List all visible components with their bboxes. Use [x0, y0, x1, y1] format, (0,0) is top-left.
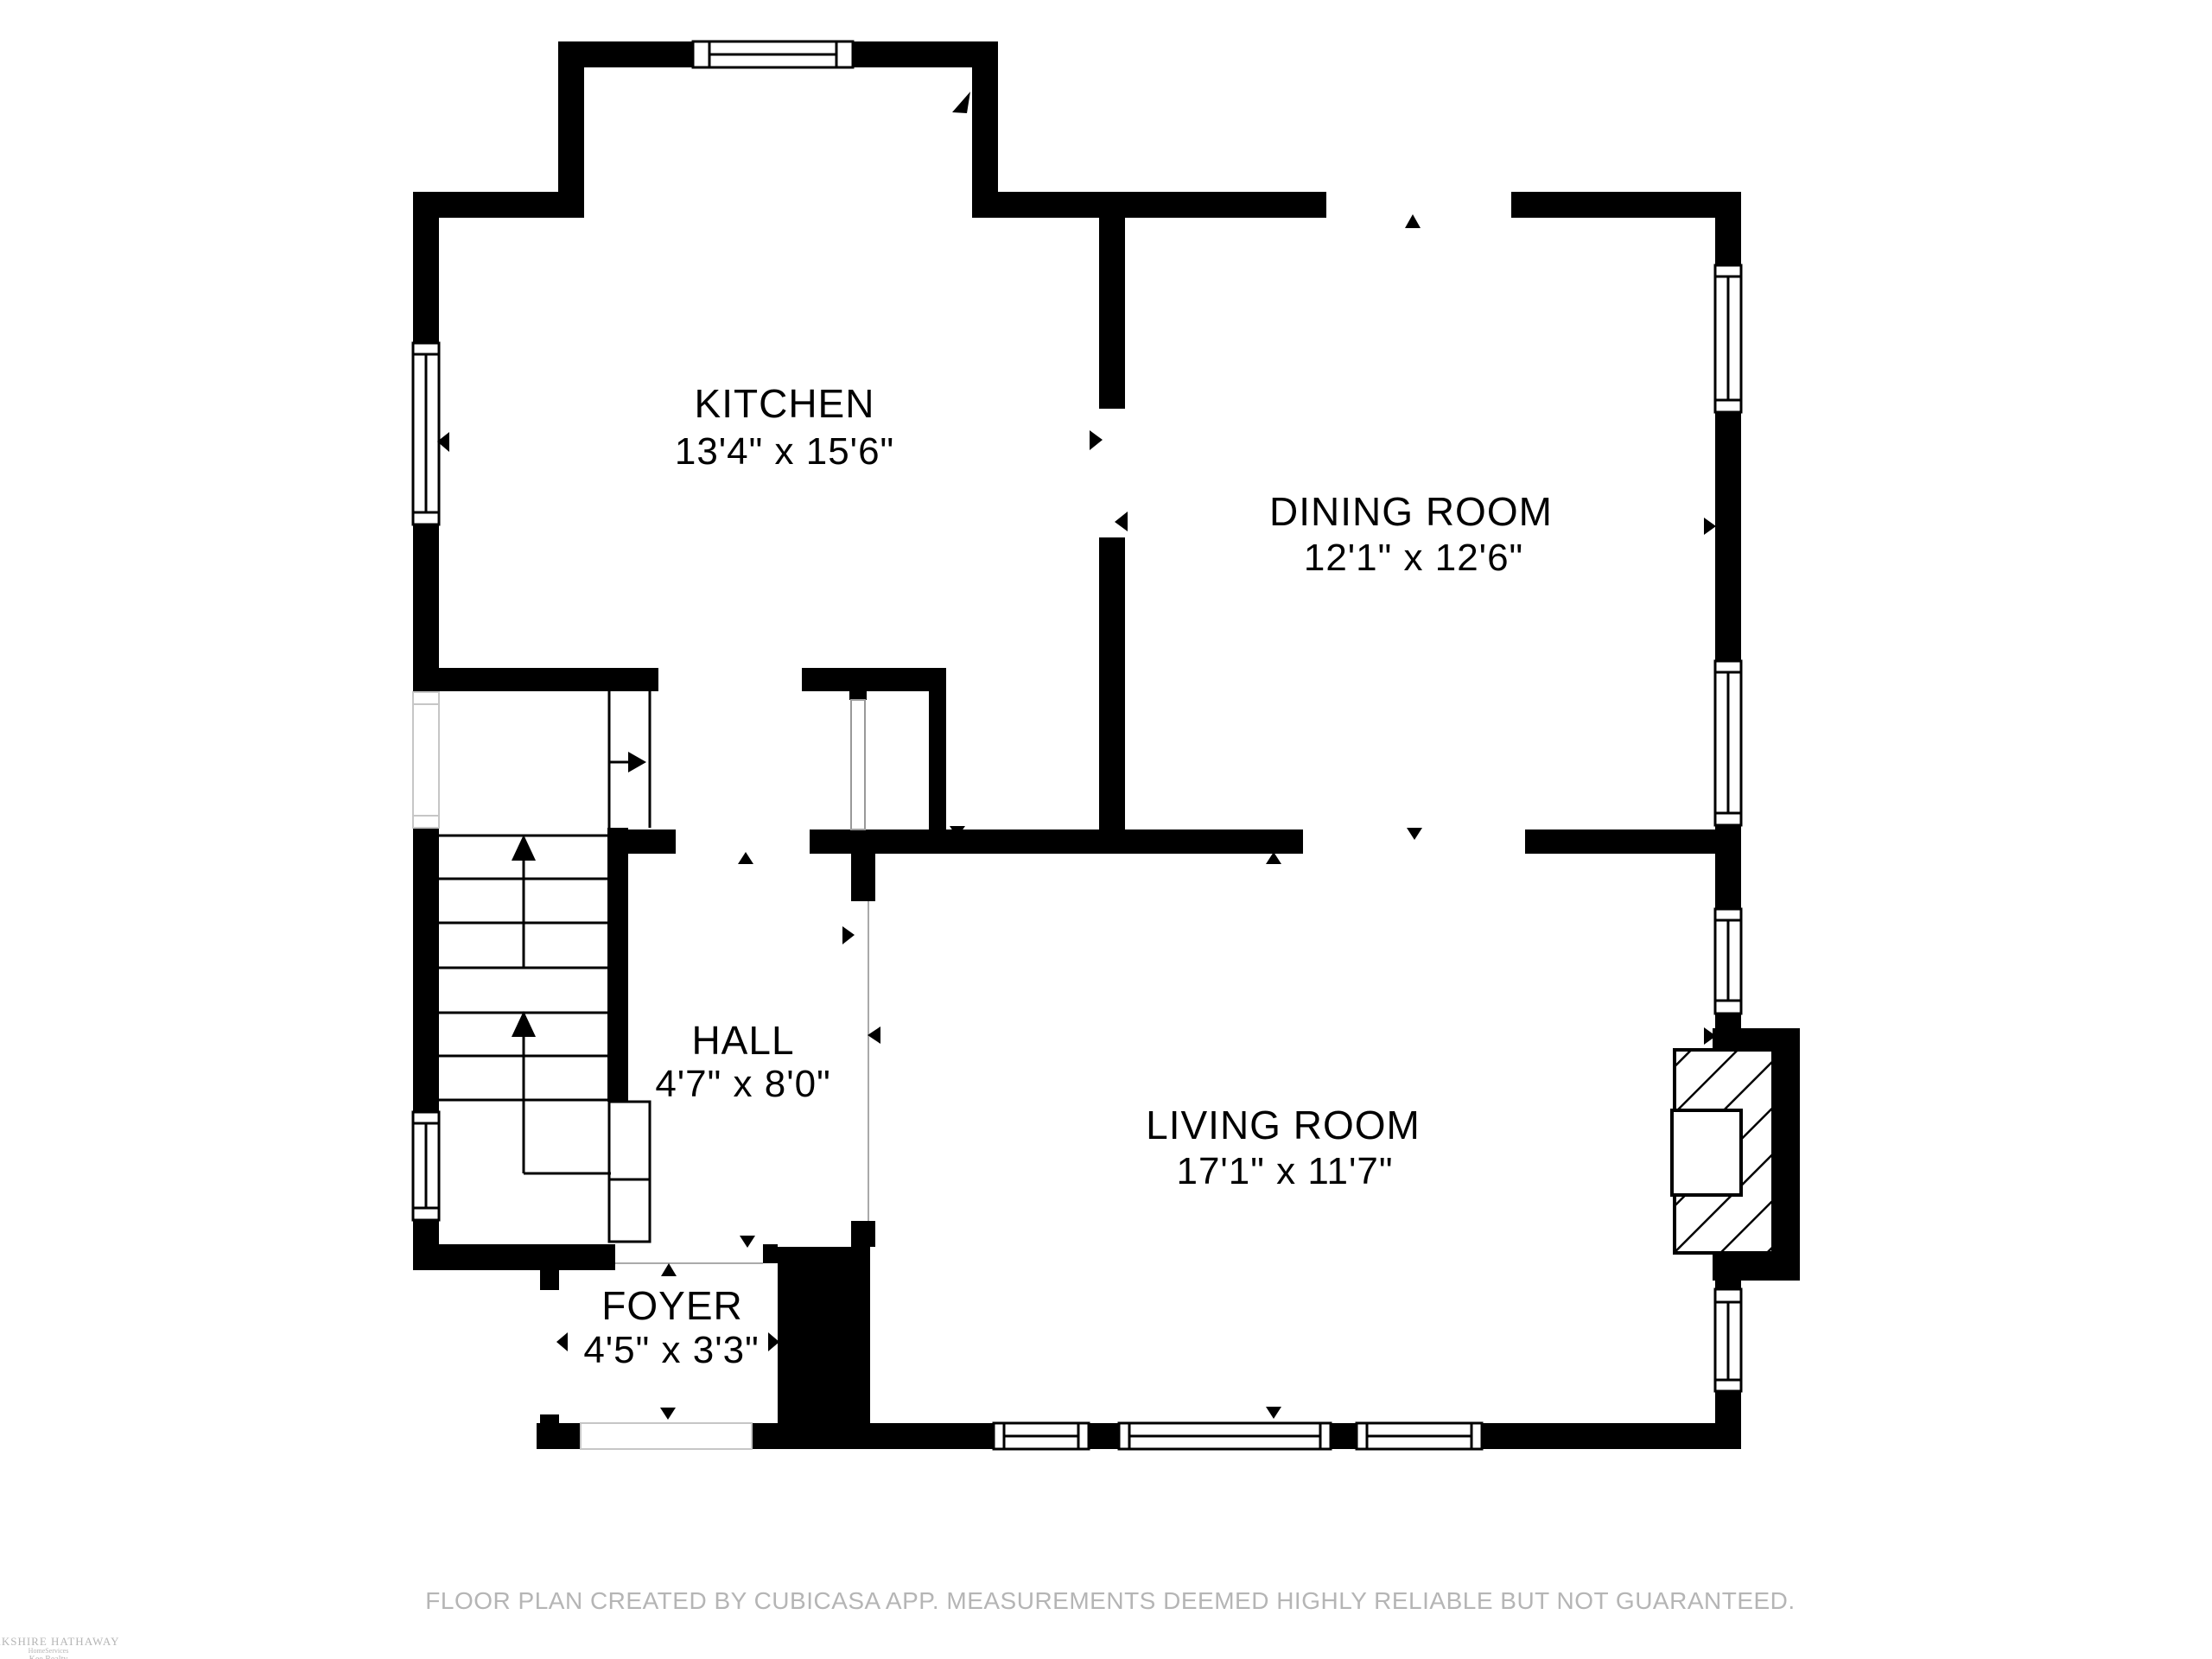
window-left-opening [413, 692, 439, 828]
wall-kitchen-nook [929, 668, 946, 836]
down-arrow-icon [660, 1408, 676, 1420]
down-arrow-icon [1407, 828, 1422, 840]
room-label-dining: DINING ROOM 12'1" x 12'6" [1269, 489, 1553, 579]
opening-arrows [437, 92, 1716, 1420]
wall-right-seg3 [1715, 825, 1741, 909]
right-arrow-icon [628, 752, 646, 772]
front-door-opening [581, 1423, 752, 1449]
room-label-living: LIVING ROOM 17'1" x 11'7" [1146, 1103, 1421, 1192]
down-arrow-icon [740, 1236, 755, 1248]
window-kitchen-top [693, 41, 853, 67]
wall-living-top-left [810, 829, 1303, 854]
wall-stair-bottom [413, 1244, 615, 1270]
up-arrow-icon [1266, 852, 1281, 864]
wall-hall-right-top [851, 854, 875, 901]
doors-and-openings [609, 691, 868, 1263]
logo-line-1: BERKSHIRE HATHAWAY [0, 1635, 119, 1648]
room-dimensions: 12'1" x 12'6" [1304, 537, 1523, 579]
right-arrow-icon [1704, 518, 1716, 535]
left-arrow-icon [1115, 512, 1128, 531]
wall-kitchen-dining-bottom [1099, 537, 1125, 854]
door-jamb-top [849, 689, 867, 700]
window-living-bottom-3 [1357, 1423, 1482, 1449]
room-dimensions: 4'5" x 3'3" [583, 1329, 759, 1371]
room-dimensions: 13'4" x 15'6" [675, 430, 894, 473]
stairs-up-arrow-icon [512, 835, 536, 861]
wall-bottom-pier1 [1089, 1423, 1119, 1449]
room-name: DINING ROOM [1269, 489, 1553, 534]
room-dimensions: 17'1" x 11'7" [1176, 1150, 1393, 1192]
wall-protrusion-right [972, 41, 998, 218]
wall-top-mid [972, 192, 1326, 218]
room-labels: KITCHEN 13'4" x 15'6" DINING ROOM 12'1" … [583, 381, 1553, 1371]
floor-plan-page: KITCHEN 13'4" x 15'6" DINING ROOM 12'1" … [0, 0, 2212, 1659]
window-living-right-1 [1715, 909, 1741, 1014]
window-frame [413, 692, 439, 828]
door-leaf [851, 700, 865, 829]
wall-left-seg3 [413, 828, 439, 1112]
fireplace-firebox [1672, 1110, 1741, 1195]
window-living-bottom-2 [1119, 1423, 1331, 1449]
footer-disclaimer: FLOOR PLAN CREATED BY CUBICASA APP. MEAS… [425, 1587, 1795, 1614]
wall-bottom-seg2 [1482, 1423, 1741, 1449]
up-arrow-icon [738, 852, 753, 864]
wall-left-seg1 [413, 218, 439, 343]
wall-kitchen-bottom-left [439, 668, 658, 691]
windows [413, 41, 1741, 1449]
logo-line-2: HomeServices [29, 1647, 69, 1655]
left-arrow-icon [868, 1027, 880, 1044]
diagonal-arrow-icon [952, 92, 970, 113]
window-stair-left [413, 1112, 439, 1220]
door-box [609, 1102, 650, 1242]
left-arrow-icon [556, 1332, 568, 1351]
right-arrow-icon [842, 926, 855, 944]
window-living-bottom-1 [994, 1423, 1089, 1449]
exterior-walls [413, 41, 1741, 1449]
room-dimensions: 4'7" x 8'0" [655, 1063, 830, 1105]
wall-living-top-right [1525, 829, 1715, 854]
wall-hall-bottom-stub [763, 1244, 778, 1263]
window-dining-right-1 [1715, 265, 1741, 412]
down-arrow-icon [1266, 1407, 1281, 1419]
wall-hall-right-bottom [851, 1221, 875, 1247]
logo-line-3: Kee Realty [29, 1655, 68, 1659]
wall-stair-right [607, 828, 628, 1102]
room-name: HALL [691, 1018, 794, 1063]
wall-protrusion-left [558, 41, 584, 218]
wall-foyer-left-bottom [540, 1414, 559, 1449]
wall-top-step-left [413, 192, 584, 218]
wall-kitchen-dining-top [1099, 214, 1125, 409]
wall-left-seg4 [413, 1220, 439, 1270]
window-living-right-2 [1715, 1289, 1741, 1391]
wall-bottom-seg1 [870, 1423, 994, 1449]
wall-right-seg2 [1715, 412, 1741, 661]
wall-kitchen-bottom-right [802, 668, 946, 691]
wall-bottom-pier2 [1331, 1423, 1357, 1449]
door-jamb-bottom [849, 829, 867, 854]
right-arrow-icon [1090, 430, 1103, 450]
up-arrow-icon [661, 1263, 677, 1276]
window-kitchen-left [413, 343, 439, 524]
up-arrow-icon [1405, 214, 1421, 228]
wall-block-foyer-living [778, 1247, 870, 1449]
room-name: LIVING ROOM [1146, 1103, 1421, 1147]
room-name: FOYER [601, 1283, 742, 1328]
staircase [439, 835, 628, 1173]
room-label-kitchen: KITCHEN 13'4" x 15'6" [675, 381, 894, 473]
wall-left-seg2 [413, 524, 439, 692]
stairs-up-arrow-icon [512, 1011, 536, 1037]
wall-right-seg1 [1715, 192, 1741, 265]
floor-plan-canvas: KITCHEN 13'4" x 15'6" DINING ROOM 12'1" … [0, 0, 2212, 1659]
room-label-foyer: FOYER 4'5" x 3'3" [583, 1283, 759, 1371]
fireplace [1672, 1028, 1800, 1281]
brokerage-logo: BERKSHIRE HATHAWAY HomeServices Kee Real… [0, 1635, 119, 1659]
window-dining-right-2 [1715, 661, 1741, 825]
room-label-hall: HALL 4'7" x 8'0" [655, 1018, 830, 1105]
room-name: KITCHEN [695, 381, 875, 426]
wall-top-right [1511, 192, 1741, 218]
